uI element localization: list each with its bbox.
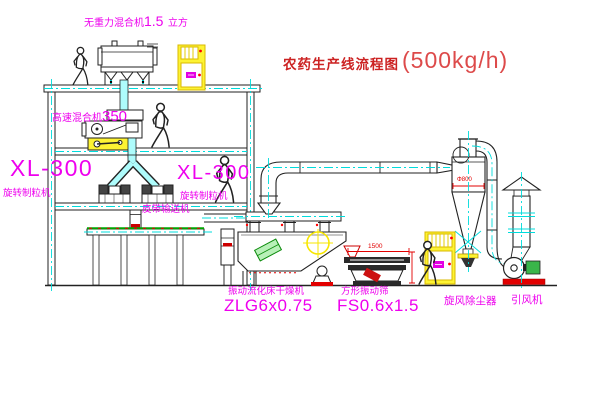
control-cabinet-right: [425, 232, 455, 284]
dimension-cyclone-diameter: Φ800: [457, 177, 472, 183]
dryer-feed-chute: [221, 229, 234, 285]
label-belt-conveyor: 皮带输送机: [142, 205, 190, 215]
title-capacity: (500kg/h): [402, 47, 508, 74]
person-figure: [152, 103, 169, 146]
label-granulator-right-name: 旋转制粒机: [180, 192, 228, 202]
control-cabinet-top: [178, 45, 205, 90]
exhaust-duct: [256, 158, 454, 218]
label-cyclone: 旋风除尘器: [444, 296, 497, 307]
induced-draft-fan: [503, 247, 545, 285]
indicator-dot-icon: [198, 74, 201, 77]
granulator-right: [142, 185, 173, 203]
vibration-motor: [311, 266, 333, 286]
label-high-speed-mixer: 高速混合机350: [52, 109, 127, 125]
air-duct-stub: [202, 214, 250, 222]
label-granulator-right-model: XL-300: [177, 163, 251, 183]
label-screen-model: FS0.6x1.5: [337, 297, 419, 314]
label-fan: 引风机: [511, 295, 543, 306]
indicator-dot-icon: [450, 237, 453, 240]
flow-diagram: 农药生产线流程图 (500kg/h) 无重力混合机1.5 立方 高速混合机350…: [0, 0, 600, 403]
cyclone-separator: [452, 131, 485, 272]
indicator-dot-icon: [199, 50, 202, 53]
belt-conveyor: [84, 228, 212, 285]
label-gravity-mixer: 无重力混合机1.5 立方: [84, 14, 188, 30]
title-text: 农药生产线流程图: [283, 53, 399, 73]
diagram-title: 农药生产线流程图 (500kg/h): [283, 47, 508, 74]
fan-motor-icon: [526, 261, 540, 274]
gravity-mixer: [98, 41, 158, 85]
label-granulator-left-model: XL-300: [10, 157, 93, 180]
label-dryer-model: ZLG6x0.75: [224, 297, 313, 314]
y-chute: [110, 155, 157, 187]
granulator-left: [99, 185, 130, 203]
indicator-dot-icon: [448, 263, 451, 266]
granulator-chute: [130, 210, 141, 229]
dimension-screen-length: 1500: [368, 244, 382, 251]
vibrating-screen: [344, 246, 415, 285]
label-granulator-left-name: 旋转制粒机: [3, 189, 51, 199]
person-figure: [73, 47, 88, 84]
